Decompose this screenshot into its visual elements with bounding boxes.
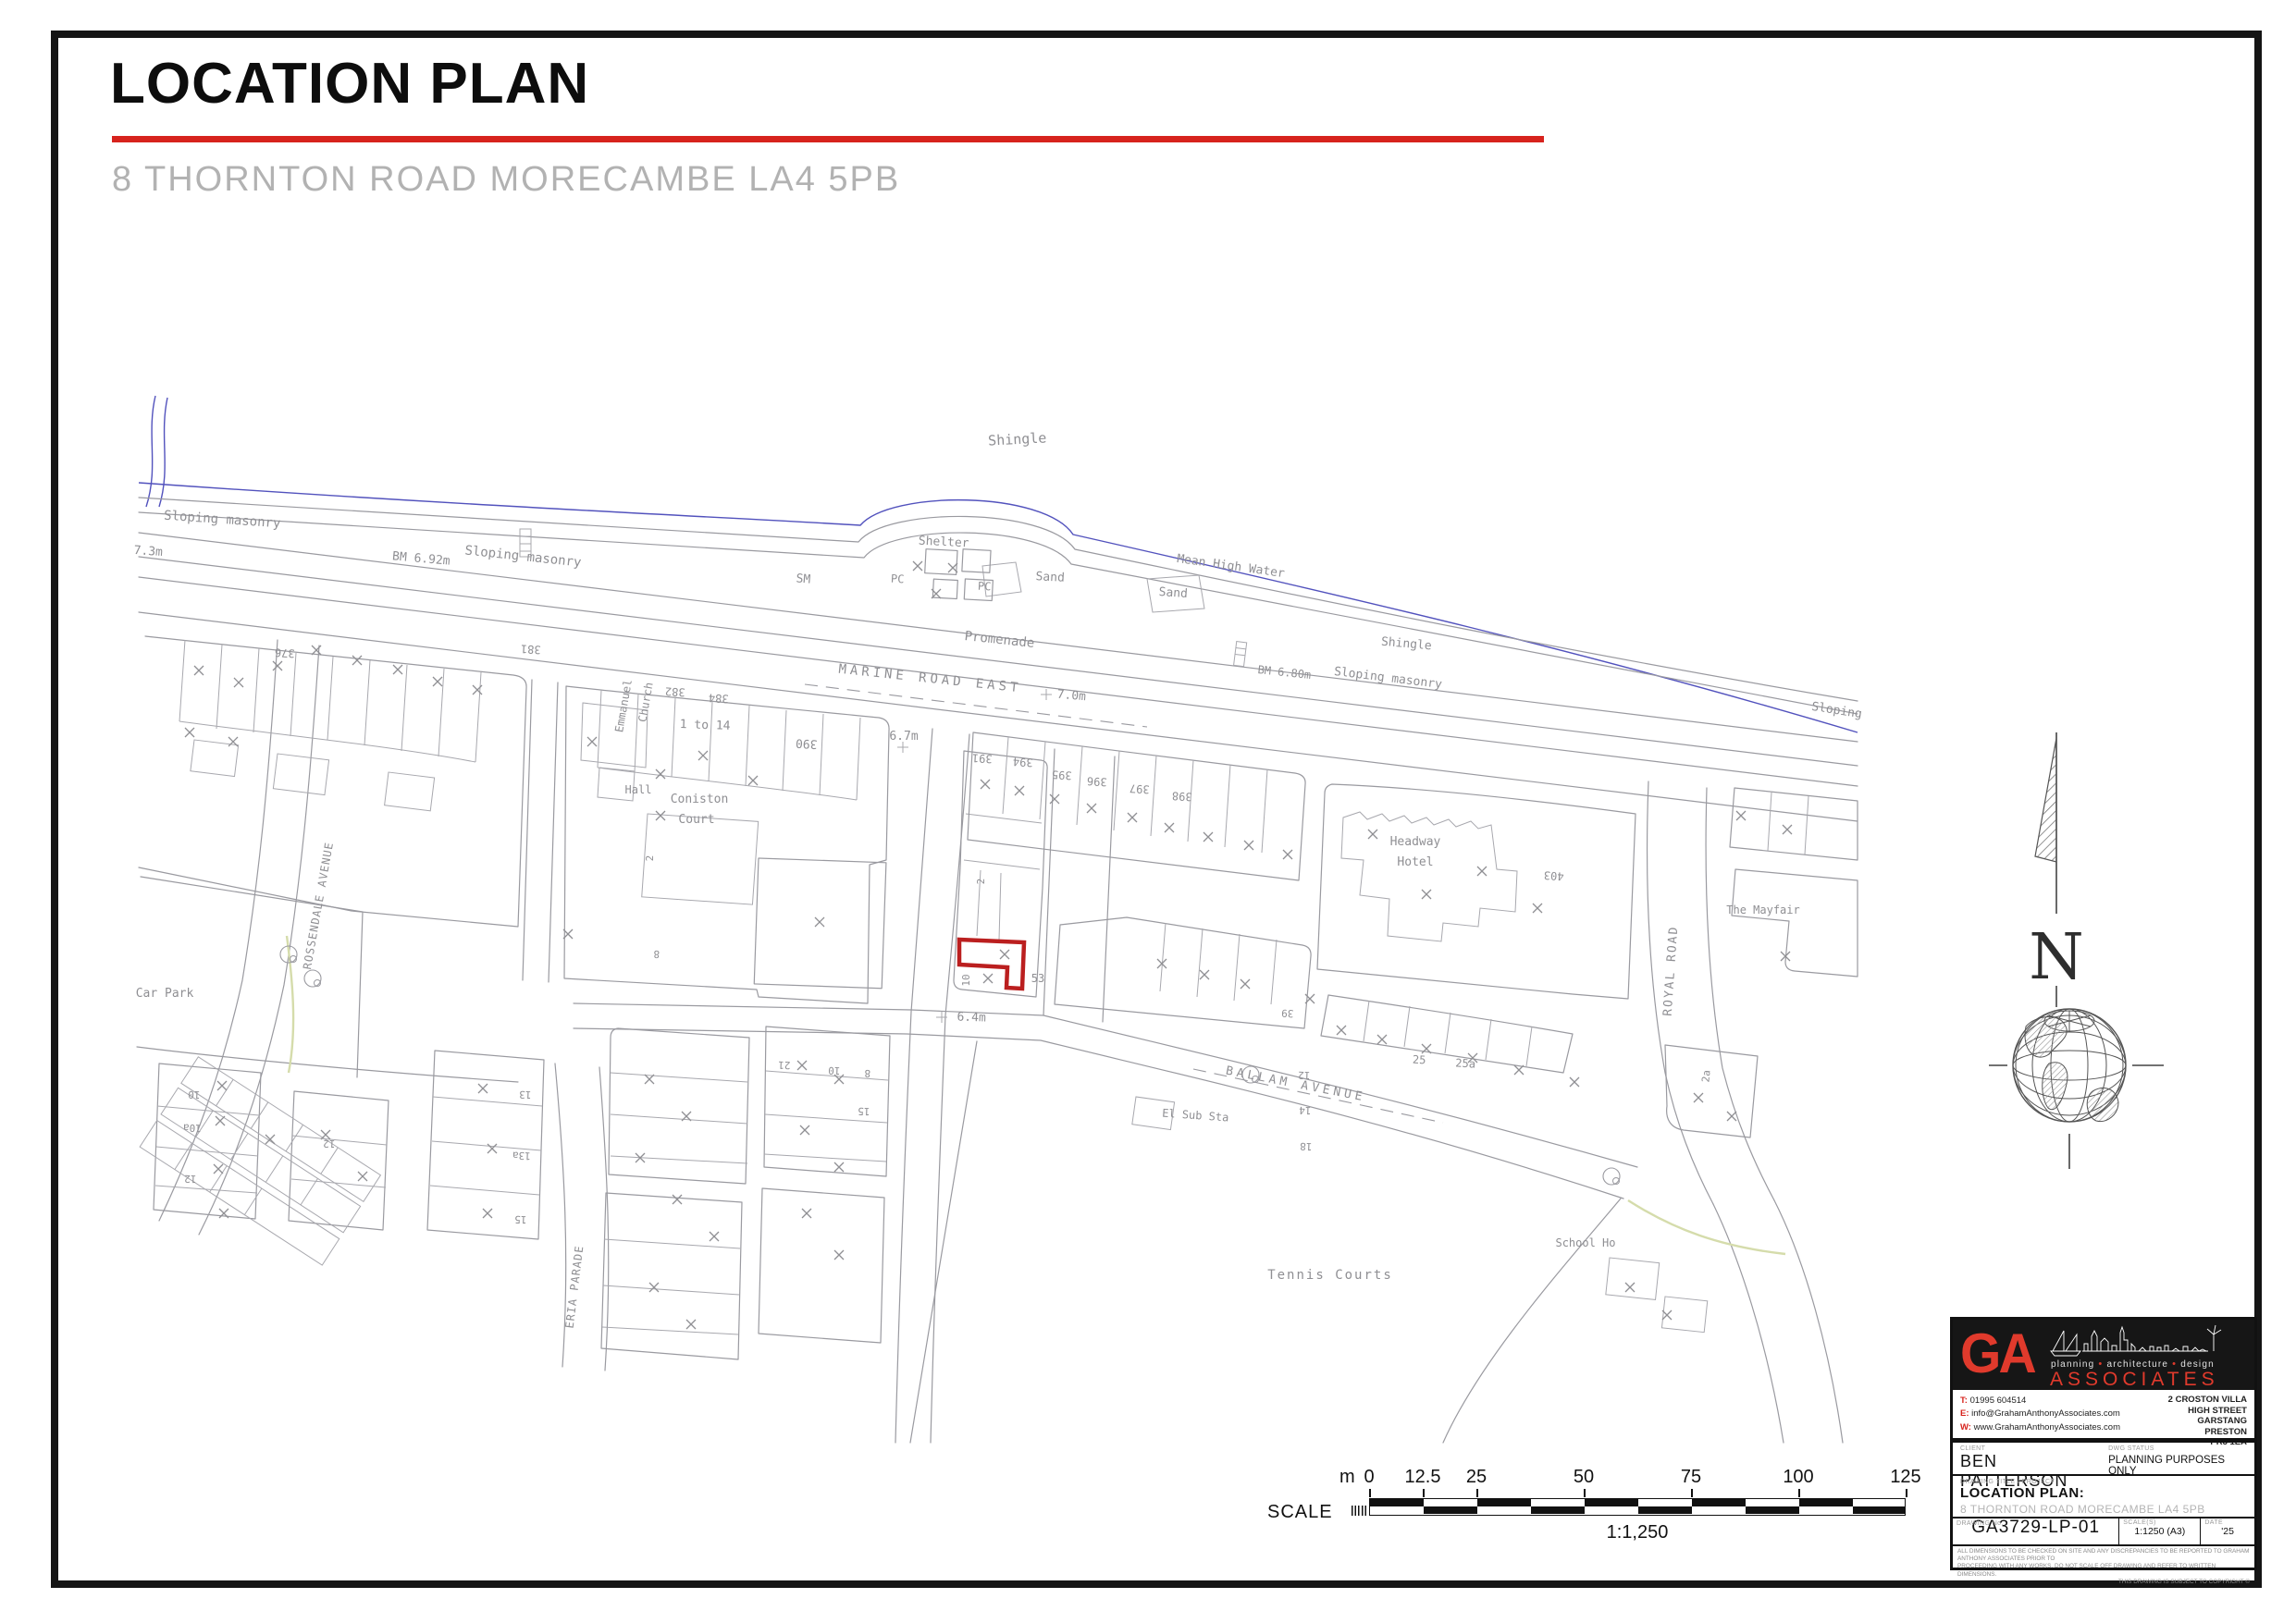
svg-text:7.0m: 7.0m [1056, 688, 1087, 705]
svg-text:15: 15 [858, 1105, 870, 1117]
scale-word: SCALE [1267, 1502, 1333, 1523]
svg-text:397: 397 [1129, 781, 1150, 795]
svg-text:Promenade: Promenade [964, 629, 1035, 651]
dwg-status-label: DWG STATUS [2108, 1445, 2247, 1452]
svg-text:6.4m: 6.4m [957, 1010, 986, 1025]
svg-text:Sand: Sand [1035, 570, 1065, 585]
drawing-title-sub: 8 THORNTON ROAD MORECAMBE LA4 5PB [1960, 1503, 2247, 1516]
scale-unit: m [1339, 1467, 1355, 1488]
date-value: '25 [2204, 1526, 2251, 1537]
svg-text:10: 10 [828, 1064, 841, 1076]
svg-text:Church: Church [636, 682, 655, 723]
svg-text:14: 14 [1299, 1104, 1312, 1116]
svg-text:403: 403 [1543, 868, 1564, 882]
svg-text:Emmanuel: Emmanuel [612, 679, 635, 733]
scale-tick-75: 75 [1681, 1467, 1701, 1488]
address-line: GARSTANG [2168, 1416, 2247, 1427]
svg-text:21: 21 [778, 1059, 791, 1071]
svg-text:10: 10 [188, 1088, 201, 1100]
svg-text:Sloping masonry: Sloping masonry [164, 509, 281, 532]
svg-text:390: 390 [796, 735, 818, 750]
globe-icon [1989, 1009, 2164, 1169]
roads [137, 533, 1858, 1443]
web-label: W: [1960, 1422, 1971, 1432]
svg-text:Court: Court [678, 813, 714, 827]
disclaimer-line: PROCEEDING WITH ANY WORKS. DO NOT SCALE … [1957, 1563, 2250, 1578]
north-letter: N [2029, 921, 2084, 994]
scale-value: 1:1250 (A3) [2123, 1526, 2196, 1537]
svg-text:BM 6.92m: BM 6.92m [391, 549, 451, 568]
svg-text:381: 381 [521, 642, 541, 656]
svg-text:BM 6.80m: BM 6.80m [1257, 663, 1312, 682]
plan-sheet: LOCATION PLAN 8 THORNTON ROAD MORECAMBE … [0, 0, 2296, 1623]
date-label: DATE [2204, 1519, 2251, 1526]
scale-tick-125: 125 [1890, 1467, 1920, 1488]
svg-text:12: 12 [323, 1137, 336, 1150]
skyline-icon [2049, 1323, 2240, 1359]
scale-tick-12-5: 12.5 [1405, 1467, 1441, 1488]
svg-text:25: 25 [1413, 1053, 1426, 1067]
contact-section: T: 01995 604514 E: info@GrahamAnthonyAss… [1953, 1390, 2254, 1438]
logo-associates: ASSOCIATES [2050, 1369, 2219, 1391]
svg-text:10a: 10a [183, 1122, 202, 1135]
svg-text:ROYAL ROAD: ROYAL ROAD [1661, 925, 1682, 1016]
drawing-title-row: DRAWING TITLE / PROJECT LOCATION PLAN: 8… [1953, 1476, 2254, 1518]
svg-text:PC: PC [978, 580, 992, 594]
scale-bar: m 0 12.5 25 50 75 100 125 SCALE 1:1,250 [1267, 1467, 1933, 1546]
svg-text:The Mayfair: The Mayfair [1726, 904, 1799, 916]
svg-text:8: 8 [864, 1067, 870, 1079]
svg-text:Shelter: Shelter [918, 535, 969, 551]
svg-text:Sloping masonry: Sloping masonry [464, 543, 582, 570]
svg-text:8: 8 [653, 948, 660, 960]
svg-text:396: 396 [1087, 774, 1107, 788]
scale-ratio: 1:1,250 [1369, 1522, 1906, 1543]
drawing-title: LOCATION PLAN: [1960, 1485, 2247, 1501]
scale-label: SCALE(S) [2123, 1519, 2196, 1526]
svg-text:ERIA PARADE: ERIA PARADE [563, 1245, 586, 1330]
address-line: 2 CROSTON VILLA [2168, 1395, 2247, 1406]
svg-text:376: 376 [275, 646, 295, 659]
drawing-number-label: DRAWING No. [1957, 1520, 2004, 1527]
svg-text:Hall: Hall [625, 783, 652, 796]
svg-text:13a: 13a [512, 1150, 531, 1162]
north-pennant [2035, 738, 2056, 862]
svg-text:Shingle: Shingle [1380, 635, 1432, 654]
svg-text:12: 12 [184, 1173, 197, 1185]
contact-lines: T: 01995 604514 E: info@GrahamAnthonyAss… [1960, 1395, 2120, 1438]
svg-text:6.7m: 6.7m [889, 730, 918, 744]
scale-tick-100: 100 [1783, 1467, 1813, 1488]
title-block: GA planning•architecture•design ASSOCIAT… [1950, 1317, 2257, 1570]
svg-text:Car Park: Car Park [136, 987, 194, 1001]
scale-bar-strip [1369, 1498, 1906, 1516]
svg-text:Mean High Water: Mean High Water [1176, 552, 1286, 581]
svg-text:10: 10 [960, 974, 972, 986]
svg-text:Shingle: Shingle [988, 429, 1047, 449]
survey-x-marks [185, 561, 1792, 1329]
web-value: www.GrahamAnthonyAssociates.com [1974, 1422, 2120, 1432]
drawing-title-label: DRAWING TITLE / PROJECT [1960, 1479, 2247, 1485]
svg-text:Sand: Sand [1158, 585, 1188, 601]
svg-text:398: 398 [1172, 789, 1192, 803]
svg-text:School Ho: School Ho [1555, 1236, 1615, 1249]
svg-text:395: 395 [1052, 768, 1072, 781]
svg-text:2: 2 [644, 855, 656, 862]
buildings [139, 529, 1858, 1443]
dwg-status: PLANNING PURPOSES ONLY [2108, 1455, 2247, 1477]
svg-text:Hotel: Hotel [1397, 855, 1433, 869]
svg-text:382: 382 [665, 684, 685, 698]
disclaimer-line: ALL DIMENSIONS TO BE CHECKED ON SITE AND… [1957, 1548, 2250, 1563]
client-label: CLIENT [1960, 1445, 2108, 1452]
scale-comb [1352, 1506, 1368, 1516]
svg-text:PC: PC [891, 572, 905, 586]
client-row: CLIENT BEN PATTERSON DWG STATUS PLANNING… [1953, 1443, 2254, 1476]
svg-text:Tennis Courts: Tennis Courts [1267, 1268, 1393, 1283]
drawing-number-row: DRAWING No. GA3729-LP-01 SCALE(S) 1:1250… [1953, 1518, 2254, 1546]
email-value: info@GrahamAnthonyAssociates.com [1971, 1408, 2120, 1419]
disclaimer-line: THIS DRAWING IS SUBJECT TO COPYRIGHT © [1957, 1579, 2250, 1586]
phone-label: T: [1960, 1396, 1968, 1406]
svg-text:53: 53 [1031, 972, 1044, 985]
phone-value: 01995 604514 [1970, 1396, 2027, 1406]
svg-text:13: 13 [519, 1088, 532, 1100]
svg-text:394: 394 [1013, 755, 1033, 768]
scale-tick-50: 50 [1574, 1467, 1594, 1488]
disclaimer: ALL DIMENSIONS TO BE CHECKED ON SITE AND… [1953, 1546, 2254, 1588]
svg-text:391: 391 [972, 751, 993, 765]
scale-tick-0: 0 [1364, 1467, 1374, 1488]
svg-text:1 to 14: 1 to 14 [679, 718, 730, 733]
scale-tick-25: 25 [1466, 1467, 1487, 1488]
svg-text:Sloping: Sloping [1810, 700, 1862, 721]
address-line: PRESTON [2168, 1427, 2247, 1438]
svg-text:Sloping masonry: Sloping masonry [1333, 665, 1443, 692]
svg-text:ROSSENDALE AVENUE: ROSSENDALE AVENUE [301, 841, 336, 970]
svg-text:18: 18 [1300, 1140, 1313, 1152]
svg-text:25a: 25a [1455, 1056, 1475, 1070]
svg-text:Headway: Headway [1390, 835, 1441, 849]
logo-band: GA planning•architecture•design ASSOCIAT… [1953, 1320, 2254, 1390]
address-line: HIGH STREET [2168, 1406, 2247, 1417]
address-lines: 2 CROSTON VILLA HIGH STREET GARSTANG PRE… [2168, 1395, 2247, 1438]
svg-text:15: 15 [514, 1213, 527, 1225]
svg-text:39: 39 [1281, 1007, 1294, 1020]
logo-ga: GA [1960, 1322, 2034, 1385]
svg-text:Coniston: Coniston [671, 793, 729, 806]
svg-text:BALLAM AVENUE: BALLAM AVENUE [1225, 1064, 1367, 1105]
svg-text:MARINE ROAD EAST: MARINE ROAD EAST [838, 662, 1022, 696]
svg-text:384: 384 [709, 691, 729, 705]
svg-text:12: 12 [1298, 1069, 1311, 1081]
svg-text:7.3m: 7.3m [133, 544, 163, 559]
svg-text:SM: SM [796, 572, 811, 586]
email-label: E: [1960, 1408, 1969, 1419]
north-arrow: N [1989, 732, 2164, 1169]
svg-text:2a: 2a [1699, 1070, 1712, 1083]
svg-text:2: 2 [975, 879, 987, 885]
